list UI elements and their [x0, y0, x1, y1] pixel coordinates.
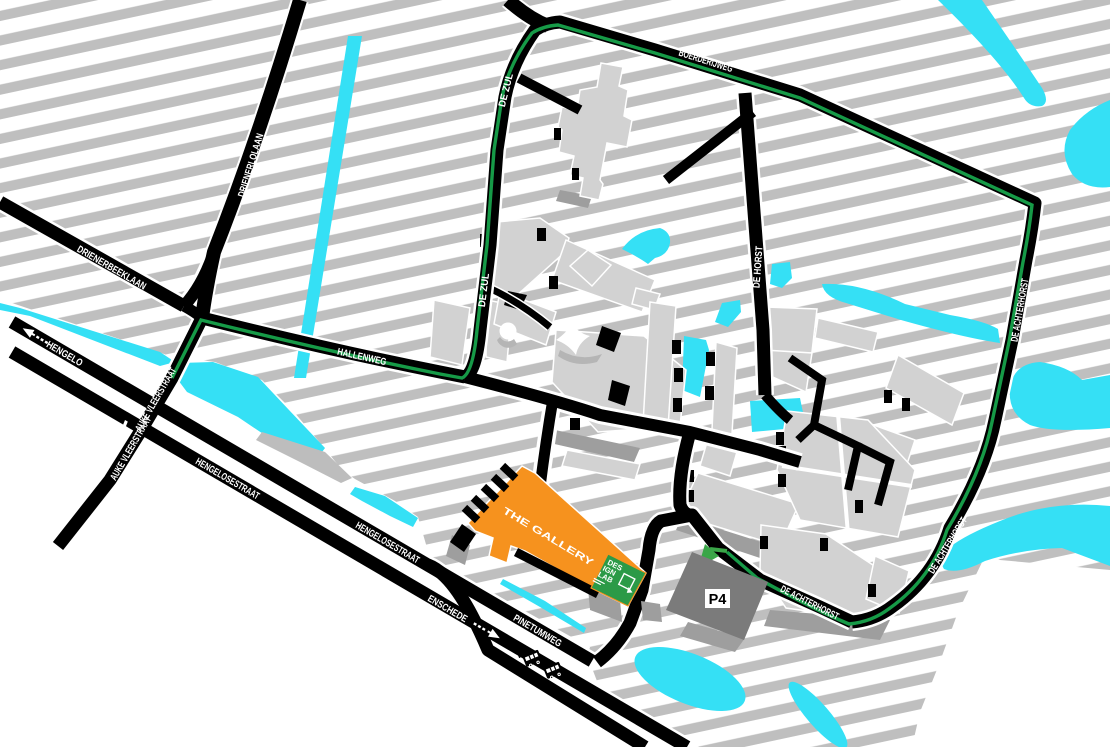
svg-text:P4: P4	[709, 592, 727, 608]
